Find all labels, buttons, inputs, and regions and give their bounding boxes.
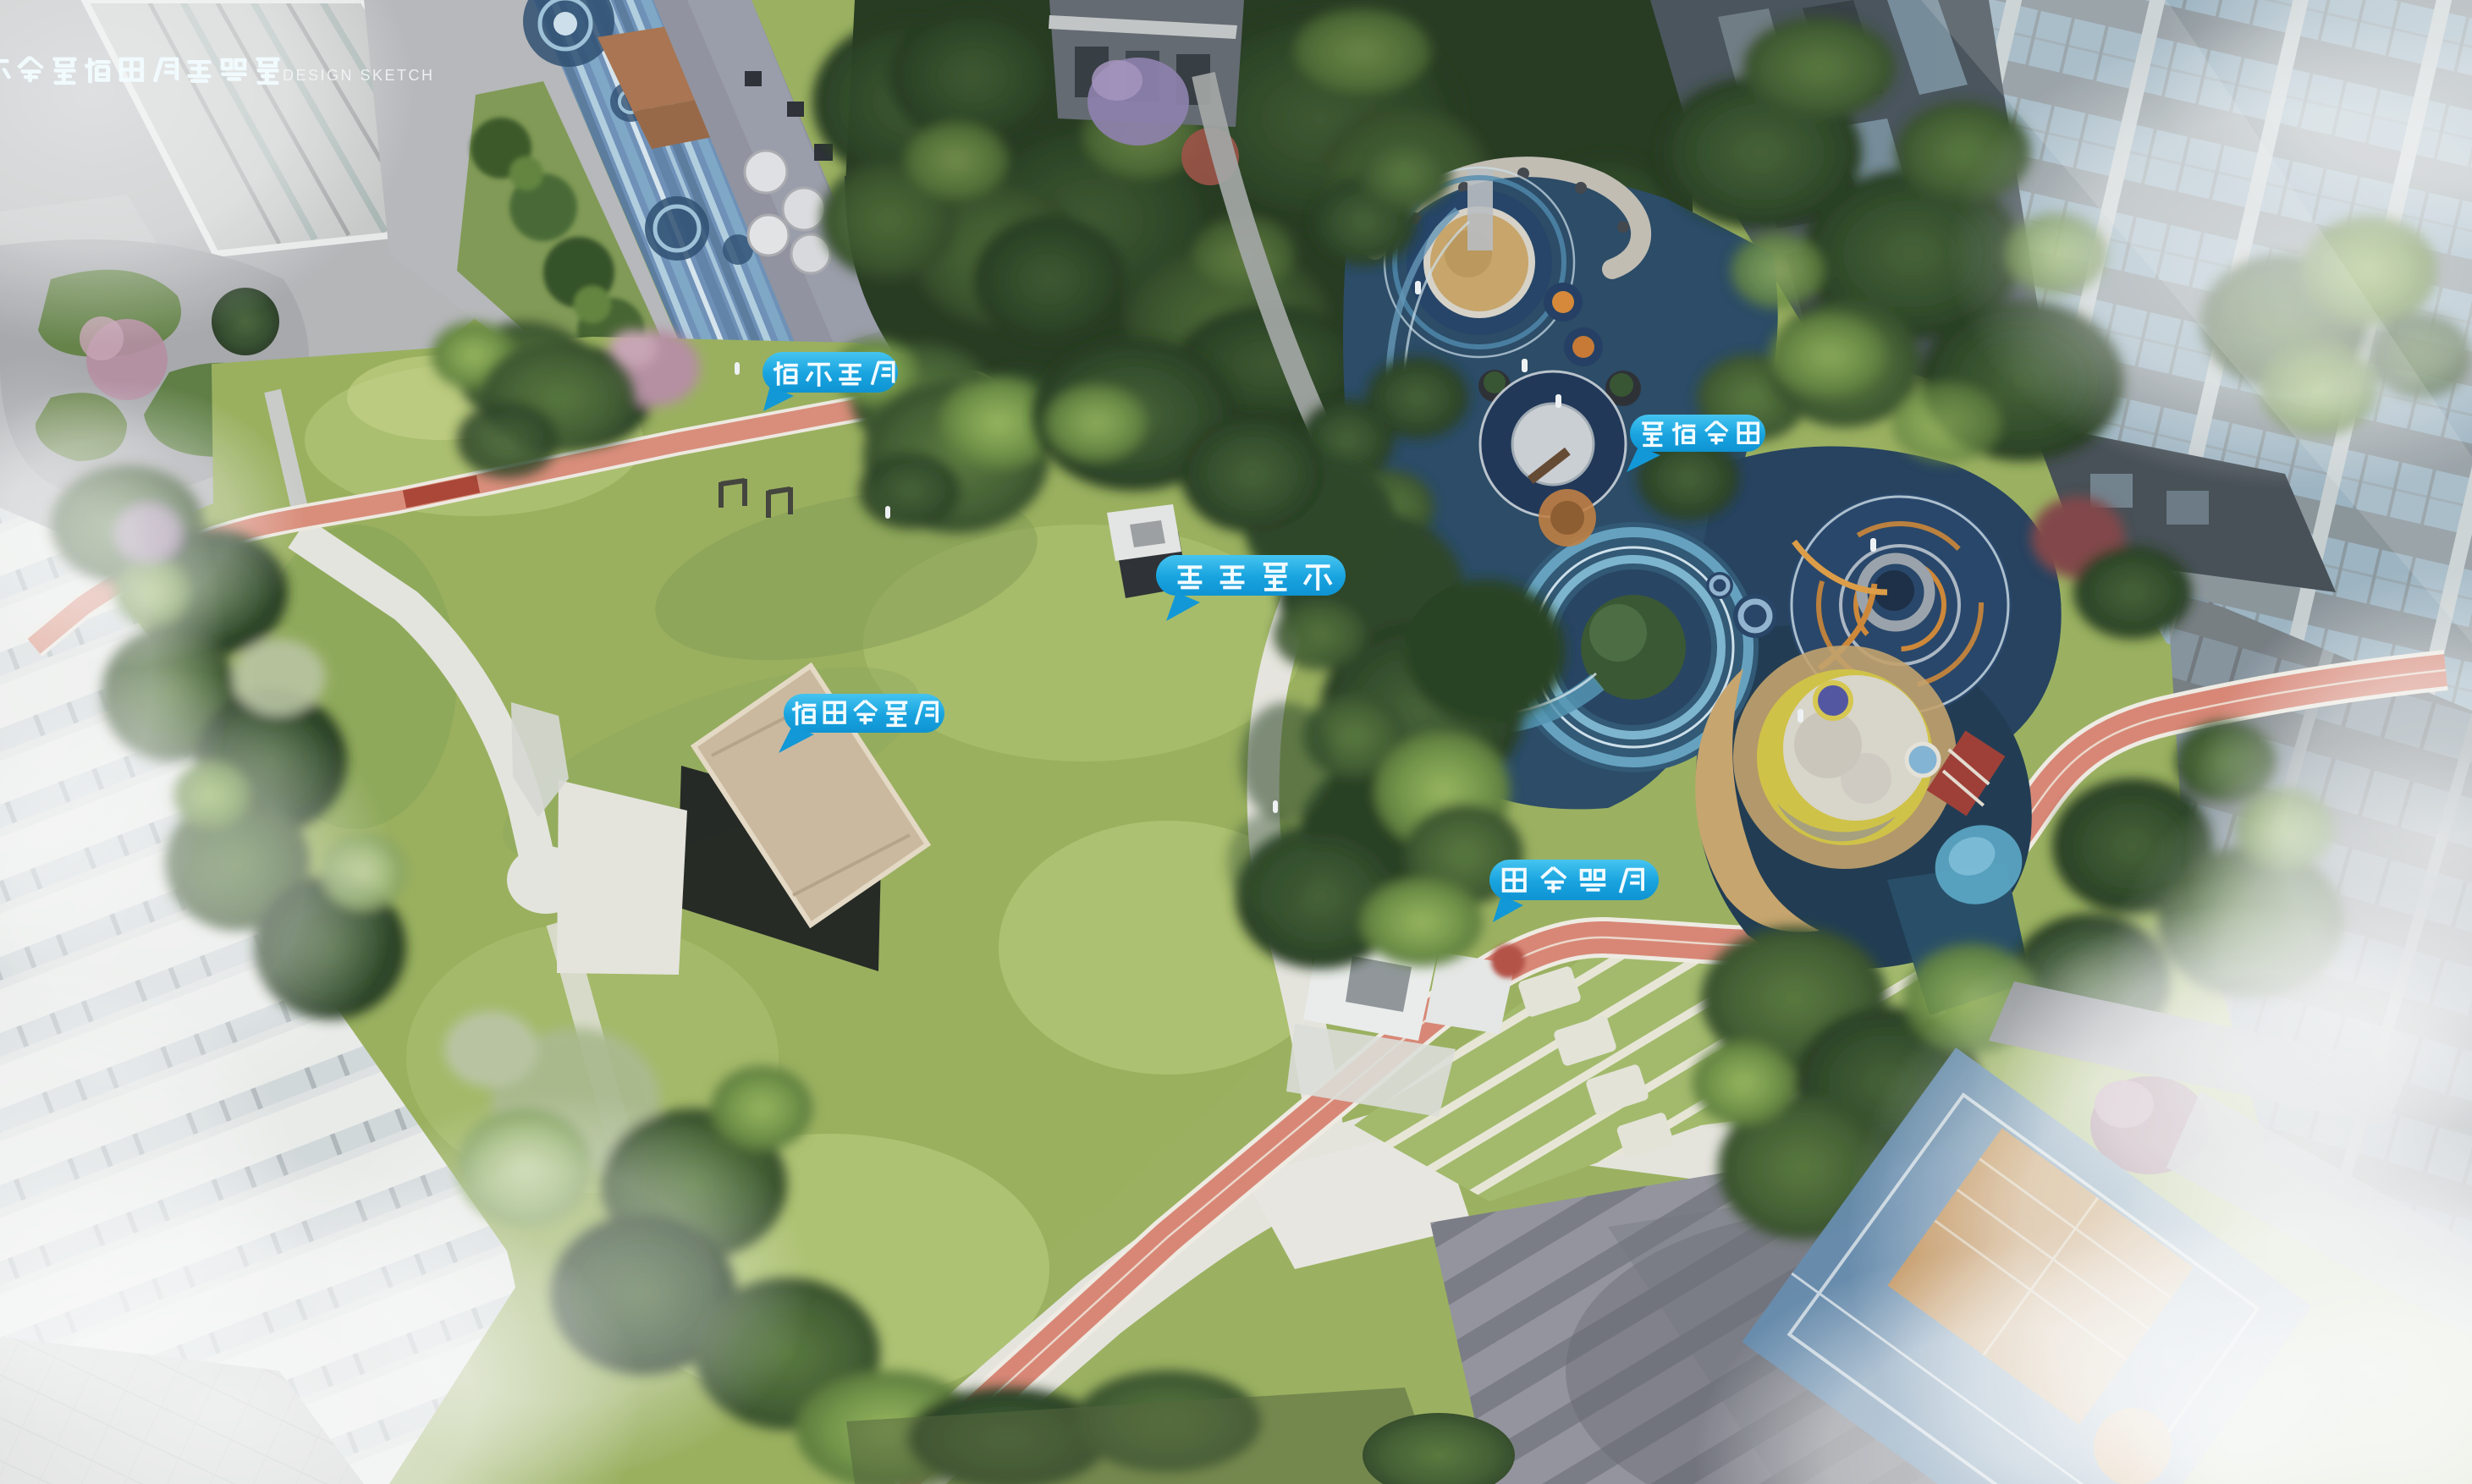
svg-text:DESIGN SKETCH: DESIGN SKETCH	[283, 67, 435, 84]
